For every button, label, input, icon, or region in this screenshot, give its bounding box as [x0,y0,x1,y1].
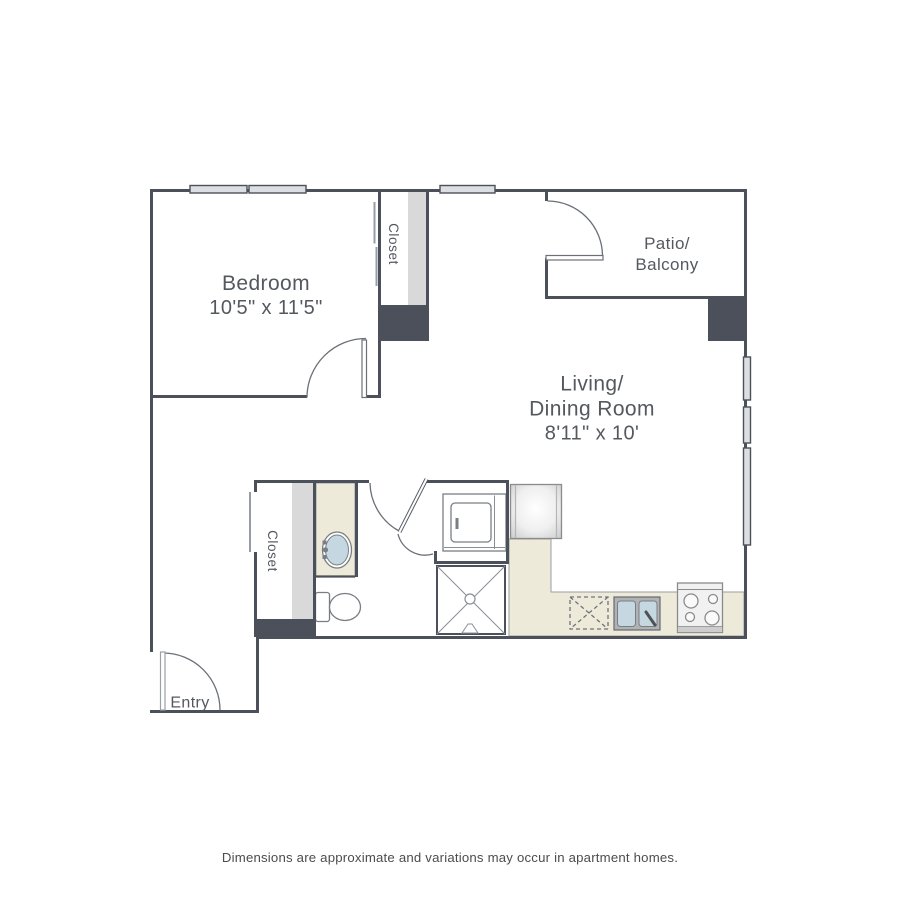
living-dimensions: 8'11" x 10' [529,422,655,446]
living-name-line1: Living/ [529,372,655,397]
bedroom-name: Bedroom [209,272,322,297]
living-name-line2: Dining Room [529,397,655,422]
entry-label: Entry [170,695,209,714]
patio-line1: Patio/ [635,233,698,254]
floor-plan-drawing [0,0,900,900]
bedroom-closet-label: Closet [385,223,401,265]
living-dining-label: Living/ Dining Room 8'11" x 10' [529,372,655,445]
refrigerator [511,485,562,539]
bathroom-closet-label: Closet [264,530,280,572]
toilet [316,593,361,622]
bathroom-sink [323,532,352,568]
stove [678,583,723,633]
shower [437,566,505,634]
patio-balcony-label: Patio/ Balcony [635,233,698,276]
closet-shading [292,192,427,619]
bedroom-label: Bedroom 10'5" x 11'5" [209,272,322,320]
floor-plan: Bedroom 10'5" x 11'5" Living/ Dining Roo… [0,0,900,900]
patio-line2: Balcony [635,254,698,275]
bedroom-dimensions: 10'5" x 11'5" [209,297,322,321]
kitchen-sink [614,597,660,630]
stacked-washer-dryer [443,494,506,551]
patio-door [546,201,603,260]
bedroom-door [307,339,367,398]
bathroom-door [370,479,433,555]
disclaimer-text: Dimensions are approximate and variation… [222,850,678,866]
